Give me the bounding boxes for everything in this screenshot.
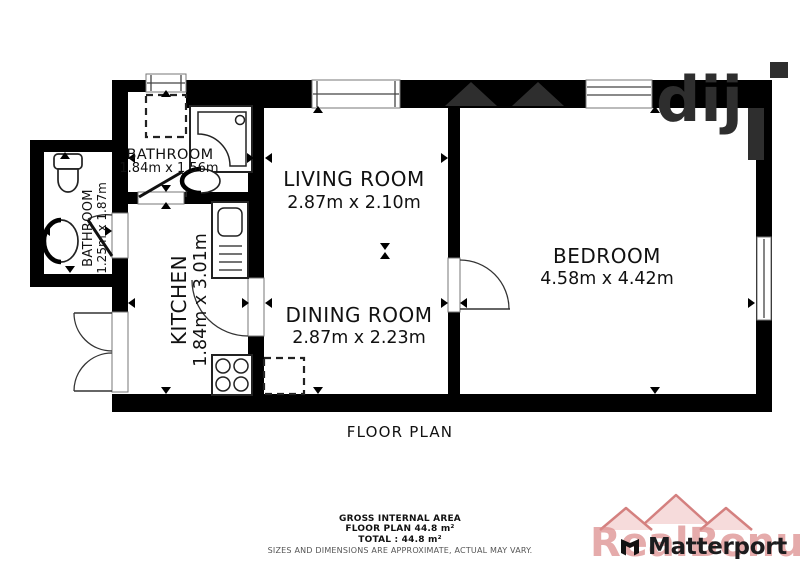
bedroom-top-window — [586, 80, 652, 108]
dining-dashed-box-icon — [264, 358, 304, 394]
dining-room-dims: 2.87m x 2.23m — [292, 328, 426, 348]
bathroom-top-dims: 1.84m x 1.56m — [119, 161, 218, 176]
living-room-dims: 2.87m x 2.10m — [287, 193, 421, 213]
top-watermark: dij — [445, 62, 788, 160]
bedroom-right-window — [757, 237, 771, 320]
bathroom-window — [146, 74, 186, 92]
matterport-logo: Matterport — [618, 534, 787, 560]
matterport-logo-text: Matterport — [648, 534, 787, 560]
bathroom-left-label: BATHROOM — [81, 189, 96, 267]
bedroom-label: BEDROOM — [553, 244, 661, 268]
kitchen-label: KITCHEN — [167, 255, 191, 345]
kitchen-dims: 1.84m x 3.01m — [191, 233, 211, 367]
bathroom-left-dims: 1.25m x 1.87m — [95, 182, 109, 274]
stove-icon — [212, 355, 252, 395]
bedroom-door — [448, 258, 510, 312]
floor-plan-page: dij — [0, 0, 800, 566]
plan-title: FLOOR PLAN — [0, 423, 800, 441]
living-room-window — [312, 80, 400, 108]
top-watermark-text: dij — [656, 63, 743, 136]
floor-plan-drawing: dij — [0, 0, 800, 566]
kitchen-sink-icon — [212, 202, 248, 278]
left-bathroom-sink-icon — [44, 220, 78, 262]
french-doors — [74, 312, 128, 392]
toilet-icon — [54, 154, 82, 192]
dining-room-label: DINING ROOM — [285, 303, 432, 327]
washer-dashed-box-icon — [146, 95, 186, 137]
top-bathroom-door — [138, 172, 186, 204]
bedroom-dims: 4.58m x 4.42m — [540, 269, 674, 289]
living-room-label: LIVING ROOM — [283, 167, 425, 191]
matterport-m-icon — [618, 535, 642, 559]
